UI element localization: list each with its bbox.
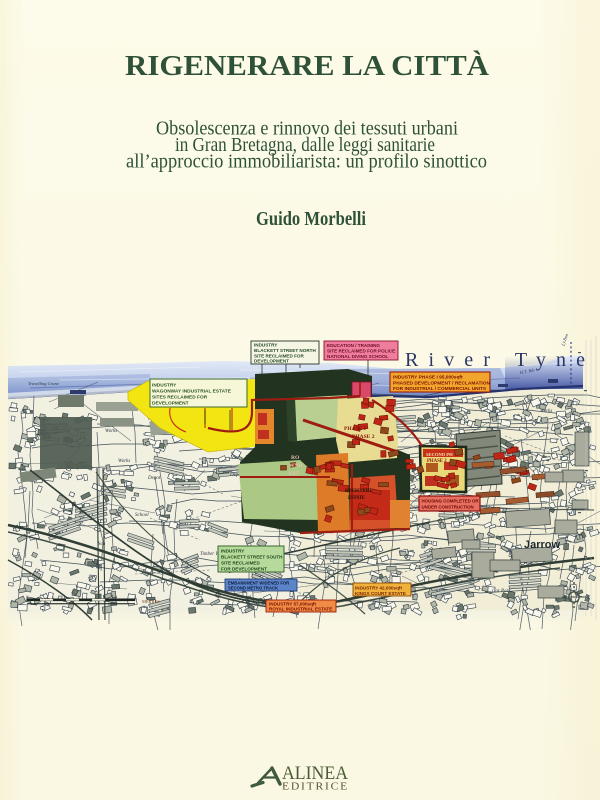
svg-text:Guido Morbelli: Guido Morbelli [256, 208, 366, 230]
svg-text:PHASE I: PHASE I [344, 426, 366, 432]
svg-text:all’approccio immobiliarista:: all’approccio immobiliarista: un profilo… [126, 151, 487, 173]
svg-text:Jarrow: Jarrow [524, 539, 561, 551]
svg-text:FOR INDUSTRIAL / COMMERCIAL UN: FOR INDUSTRIAL / COMMERCIAL UNITS [393, 386, 487, 392]
svg-text:KINGS COURT ESTATE: KINGS COURT ESTATE [355, 591, 406, 596]
svg-text:INDUSTRY: INDUSTRY [152, 383, 177, 389]
svg-text:Depot: Depot [147, 476, 161, 481]
svg-text:FOR DEVELOPMENT: FOR DEVELOPMENT [221, 567, 267, 572]
svg-text:WND: WND [289, 463, 302, 469]
svg-text:INDUSTRY: INDUSTRY [221, 549, 244, 554]
svg-text:River Tyne: River Tyne [405, 349, 585, 371]
svg-text:RIGENERARE LA CITTÀ: RIGENERARE LA CITTÀ [125, 49, 489, 82]
svg-text:UNDER CONSTRUCTION: UNDER CONSTRUCTION [422, 505, 474, 510]
svg-text:PHASE 2: PHASE 2 [427, 459, 447, 464]
svg-text:WAGONWAY INDUSTRIAL ESTATE: WAGONWAY INDUSTRIAL ESTATE [152, 389, 232, 395]
svg-text:School: School [135, 513, 149, 518]
svg-text:SITES RECLAIMED FOR: SITES RECLAIMED FOR [152, 395, 208, 401]
svg-text:DEVELOPMENT: DEVELOPMENT [254, 359, 289, 364]
svg-text:KINGS COURT: KINGS COURT [345, 489, 373, 494]
svg-text:SITE RECLAIMED FOR POLICE: SITE RECLAIMED FOR POLICE [327, 349, 395, 354]
svg-text:PHASED DEVELOPMENT / RECLAMATI: PHASED DEVELOPMENT / RECLAMATION [393, 381, 490, 387]
svg-text:SITE RECLAIMED: SITE RECLAIMED [221, 561, 260, 566]
svg-text:ROYAL INDUSTRIAL ESTATE: ROYAL INDUSTRIAL ESTATE [269, 607, 332, 612]
svg-text:BLACKETT STREET NORTH: BLACKETT STREET NORTH [254, 348, 316, 353]
svg-text:Works: Works [105, 429, 117, 434]
svg-text:DEVELOPMENT: DEVELOPMENT [152, 401, 189, 407]
svg-text:EDUCATION / TRAINING: EDUCATION / TRAINING [327, 343, 380, 348]
svg-text:PHASE 2: PHASE 2 [352, 434, 375, 440]
svg-text:RO: RO [291, 455, 300, 461]
svg-text:Car Park: Car Park [492, 589, 512, 594]
svg-text:ESTATE: ESTATE [348, 496, 366, 501]
svg-text:f.y.Bon: f.y.Bon [560, 332, 569, 346]
svg-text:Travelling Crane: Travelling Crane [28, 381, 59, 386]
svg-text:HOUSING COMPLETED OR: HOUSING COMPLETED OR [422, 499, 480, 504]
svg-text:EDITRICE: EDITRICE [282, 782, 349, 793]
svg-text:BLACKETT STREET SOUTH: BLACKETT STREET SOUTH [221, 555, 283, 560]
svg-text:NATIONAL DIVING SCHOOL: NATIONAL DIVING SCHOOL [327, 354, 389, 359]
svg-text:EST: EST [289, 471, 300, 477]
svg-text:Works: Works [118, 459, 130, 464]
svg-text:INDUSTRY: INDUSTRY [254, 343, 277, 348]
svg-text:INDUSTRY PHASE I 95,000sqft: INDUSTRY PHASE I 95,000sqft [393, 375, 463, 381]
svg-text:SECOND PH: SECOND PH [426, 452, 453, 457]
svg-text:METRES: METRES [142, 599, 160, 604]
svg-text:INDUSTRY 42,000sqft: INDUSTRY 42,000sqft [355, 586, 402, 591]
svg-text:Works: Works [540, 409, 552, 414]
svg-text:SECOND METRO TRACK: SECOND METRO TRACK [228, 586, 278, 591]
